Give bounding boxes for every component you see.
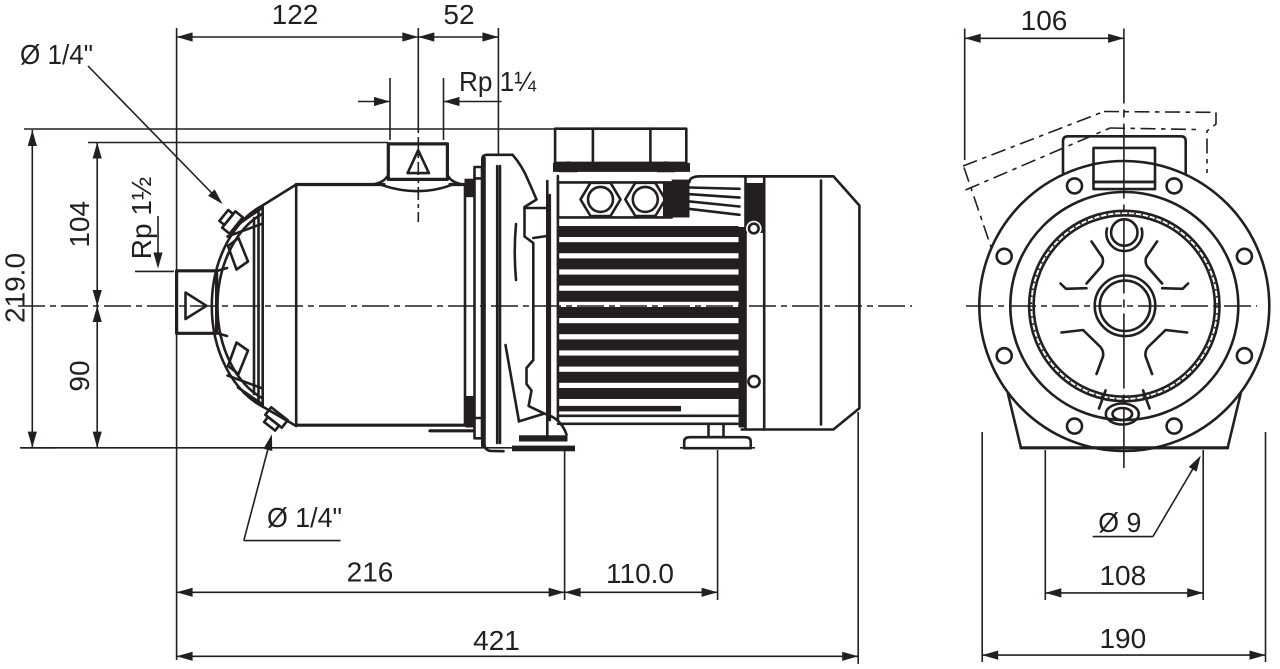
svg-text:Ø 1/4": Ø 1/4" bbox=[267, 502, 342, 533]
svg-text:106: 106 bbox=[1021, 5, 1068, 36]
svg-text:108: 108 bbox=[1099, 560, 1146, 591]
svg-text:90: 90 bbox=[64, 360, 95, 391]
svg-text:219.0: 219.0 bbox=[0, 253, 31, 323]
svg-text:421: 421 bbox=[473, 625, 520, 656]
svg-text:Rp 1½: Rp 1½ bbox=[126, 177, 157, 260]
svg-text:Ø 9: Ø 9 bbox=[1098, 507, 1141, 538]
svg-text:122: 122 bbox=[272, 0, 319, 30]
svg-text:190: 190 bbox=[1099, 623, 1146, 654]
svg-text:Ø 1/4": Ø 1/4" bbox=[20, 39, 93, 70]
svg-text:52: 52 bbox=[443, 0, 474, 30]
svg-text:104: 104 bbox=[64, 201, 95, 248]
svg-text:Rp 1¼: Rp 1¼ bbox=[459, 66, 537, 97]
svg-text:110.0: 110.0 bbox=[606, 558, 674, 589]
svg-text:216: 216 bbox=[347, 557, 394, 588]
